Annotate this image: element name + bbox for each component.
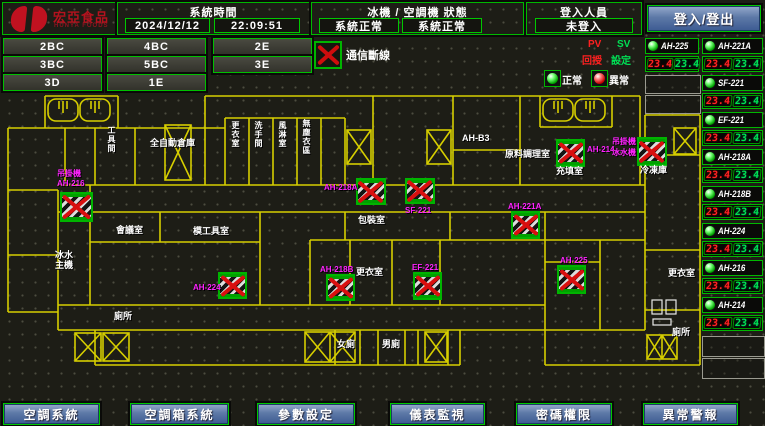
sv-value: 23.4 [732, 206, 761, 218]
room-label: 更衣室 [230, 121, 241, 163]
room-label: 女廁 [337, 337, 355, 350]
unit-name: AH-214 [718, 300, 745, 310]
brand-logo: 宏亞食品 HUNYA FOODS [2, 2, 116, 35]
floor-button-2e[interactable]: 2E [213, 38, 312, 55]
unit-status-tile-ah218b[interactable]: AH-218B [702, 186, 763, 202]
room-label: 更衣室 [356, 265, 383, 278]
ahu-unit-icon-sf221[interactable] [405, 178, 435, 204]
floor-button-4bc[interactable]: 4BC [107, 38, 206, 55]
login-section: 登入人員 未登入 [526, 2, 642, 35]
sv-name-label: 設定 [611, 52, 631, 67]
unit-label: AH-224 [193, 283, 221, 292]
system-time-section: 系統時間 2024/12/12 22:09:51 [117, 2, 310, 35]
unit-name: SF-221 [718, 78, 744, 88]
comm-loss-label: 通信斷線 [346, 47, 390, 63]
unit-label: AH-214 [587, 145, 615, 154]
unit-name: AH-224 [718, 226, 745, 236]
abnormal-label: 異常 [609, 72, 629, 87]
room-label: 會議室 [116, 223, 143, 236]
room-label: AH-B3 [462, 133, 490, 143]
stairs-icon [75, 125, 696, 362]
room-label: 無塵衣區 [301, 119, 312, 169]
unit-label: EF-221 [412, 263, 438, 272]
empty-slot [645, 95, 701, 114]
room-label: 男廁 [382, 337, 400, 350]
room-label: 廁所 [672, 325, 690, 338]
unit-values: 23.423.4 [702, 315, 763, 331]
ahu-unit-icon-freezer[interactable] [637, 137, 667, 166]
unit-label: SF-221 [405, 206, 431, 215]
pv-value: 23.4 [703, 206, 732, 218]
ahu-unit-icon-ah221a[interactable] [511, 211, 540, 239]
nav-param-set-button[interactable]: 參數設定 [257, 403, 355, 425]
pv-value: 23.4 [703, 132, 732, 144]
empty-slot [702, 358, 765, 379]
room-label: 原料調理室 [505, 147, 550, 160]
unit-values: 23.423.4 [702, 241, 763, 257]
unit-values: 23.423.4 [702, 56, 763, 72]
system-date-value: 2024/12/12 [125, 18, 210, 33]
unit-values: 23.423.4 [702, 167, 763, 183]
unit-label: 冰水機 [612, 147, 636, 158]
nav-meter-watch-button[interactable]: 儀表監視 [390, 403, 485, 425]
unit-values: 23.423.4 [702, 93, 763, 109]
unit-name: AH-218B [718, 189, 751, 199]
unit-values-ah225: 23.4 23.4 [645, 56, 699, 72]
unit-name: AH-221A [718, 41, 751, 51]
ac-status-value: 系統正常 [402, 18, 482, 33]
comm-loss-icon [314, 41, 342, 69]
floor-button-3bc[interactable]: 3BC [3, 56, 102, 73]
unit-label: AH-218A [324, 183, 357, 192]
ahu-unit-icon-ah224[interactable] [218, 272, 247, 299]
unit-values: 23.423.4 [702, 204, 763, 220]
sv-abbr-label: SV [617, 39, 630, 50]
room-label: 全自動倉庫 [150, 136, 195, 149]
sv-value: 23.4 [732, 243, 761, 255]
unit-name: AH-218A [718, 152, 751, 162]
brand-name-en: HUNYA FOODS [54, 23, 109, 29]
unit-name: AH-216 [718, 263, 745, 273]
room-label: 風淋室 [277, 121, 288, 163]
unit-values: 23.423.4 [702, 278, 763, 294]
room-label: 模工具室 [193, 224, 229, 237]
unit-name: EF-221 [718, 115, 744, 125]
empty-slot [645, 75, 701, 94]
nav-ahu-system-button[interactable]: 空調箱系統 [130, 403, 229, 425]
room-label: 更衣室 [668, 266, 695, 279]
nav-alarm-button[interactable]: 異常警報 [643, 403, 738, 425]
chiller-status-value: 系統正常 [319, 18, 399, 33]
pv-name-label: 回授 [582, 52, 602, 67]
unit-label: AH-221A [508, 202, 541, 211]
floor-button-2bc[interactable]: 2BC [3, 38, 102, 55]
ahu-unit-icon-ah214[interactable] [556, 139, 585, 167]
pv-abbr-label: PV [588, 39, 601, 50]
unit-status-tile-ah218a[interactable]: AH-218A [702, 149, 763, 165]
ahu-unit-icon-ef221[interactable] [413, 272, 442, 300]
room-label: 洗手間 [253, 121, 264, 163]
pv-value: 23.4 [703, 317, 732, 329]
floor-button-3e[interactable]: 3E [213, 56, 312, 73]
ahu-unit-icon-ah225[interactable] [557, 265, 586, 294]
unit-status-tile-ah221a[interactable]: AH-221A [702, 38, 763, 54]
unit-label: 吊掛機 [612, 136, 636, 147]
pv-value: 23.4 [703, 169, 732, 181]
unit-status-tile-ah216[interactable]: AH-216 [702, 260, 763, 276]
room-label: 冷凍庫 [640, 163, 667, 176]
floor-button-5bc[interactable]: 5BC [107, 56, 206, 73]
sv-value: 23.4 [732, 58, 761, 70]
pv-value: 23.4 [703, 280, 732, 292]
room-label: 包裝室 [358, 213, 385, 226]
login-user-value: 未登入 [535, 18, 633, 33]
unit-label: AH-225 [560, 256, 588, 265]
ahu-unit-icon-ah216[interactable] [60, 192, 93, 222]
ahu-unit-icon-ah218b[interactable] [326, 274, 355, 301]
unit-status-tile-ah224[interactable]: AH-224 [702, 223, 763, 239]
unit-label: AH-216 [57, 179, 85, 188]
unit-label: 吊掛機 [57, 168, 81, 179]
empty-slot [702, 336, 765, 357]
nav-password-auth-button[interactable]: 密碼權限 [516, 403, 612, 425]
restroom-fixtures [652, 300, 676, 325]
unit-status-tile-sf221[interactable]: SF-221 [702, 75, 763, 91]
machine-status-section: 冰機 / 空調機 狀態 系統正常 系統正常 [311, 2, 524, 35]
unit-values: 23.423.4 [702, 130, 763, 146]
ahu-unit-icon-ah218a[interactable] [356, 178, 386, 205]
sv-value: 23.4 [732, 169, 761, 181]
pv-value: 23.4 [703, 243, 732, 255]
unit-status-led [647, 40, 659, 52]
unit-name: AH-225 [661, 41, 688, 51]
pv-value: 23.4 [703, 58, 732, 70]
unit-status-tile-ah225[interactable]: AH-225 [645, 38, 699, 54]
normal-led [544, 70, 561, 87]
unit-label: AH-218B [320, 265, 353, 274]
room-label: 廁所 [114, 309, 132, 322]
sv-value: 23.4 [673, 58, 700, 70]
pv-value: 23.4 [703, 95, 732, 107]
system-clock-value: 22:09:51 [214, 18, 300, 33]
room-label: 充填室 [556, 164, 583, 177]
nav-ac-system-button[interactable]: 空調系統 [3, 403, 100, 425]
abnormal-led [591, 70, 608, 87]
sv-value: 23.4 [732, 95, 761, 107]
sv-value: 23.4 [732, 317, 761, 329]
pv-value: 23.4 [646, 58, 673, 70]
brand-logo-icon [11, 6, 47, 32]
unit-status-tile-ah214[interactable]: AH-214 [702, 297, 763, 313]
login-logout-button[interactable]: 登入/登出 [647, 5, 761, 32]
hmi-screen: 宏亞食品 HUNYA FOODS 系統時間 2024/12/12 22:09:5… [0, 0, 765, 426]
unit-status-tile-ef221[interactable]: EF-221 [702, 112, 763, 128]
sv-value: 23.4 [732, 132, 761, 144]
normal-label: 正常 [562, 72, 582, 87]
sv-value: 23.4 [732, 280, 761, 292]
room-label: 冰水主機 [55, 250, 77, 270]
room-label: 工具間 [106, 126, 117, 168]
